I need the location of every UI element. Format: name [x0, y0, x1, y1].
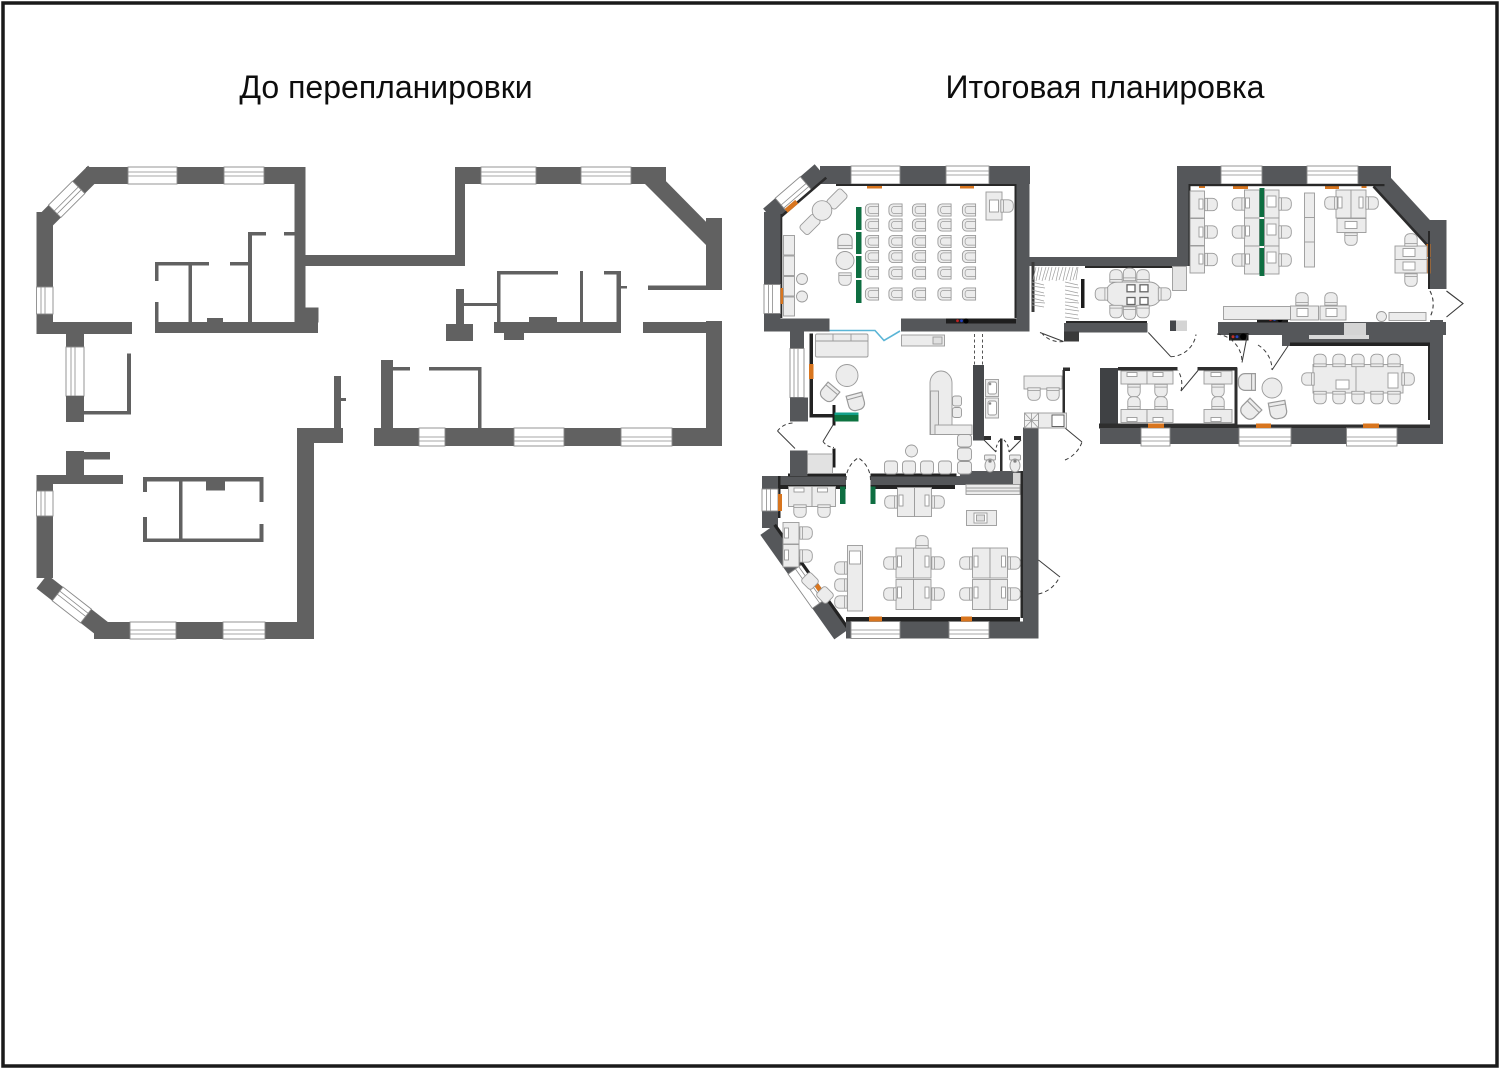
svg-text:До перепланировки: До перепланировки	[239, 69, 532, 105]
svg-text:Итоговая планировка: Итоговая планировка	[946, 69, 1265, 105]
